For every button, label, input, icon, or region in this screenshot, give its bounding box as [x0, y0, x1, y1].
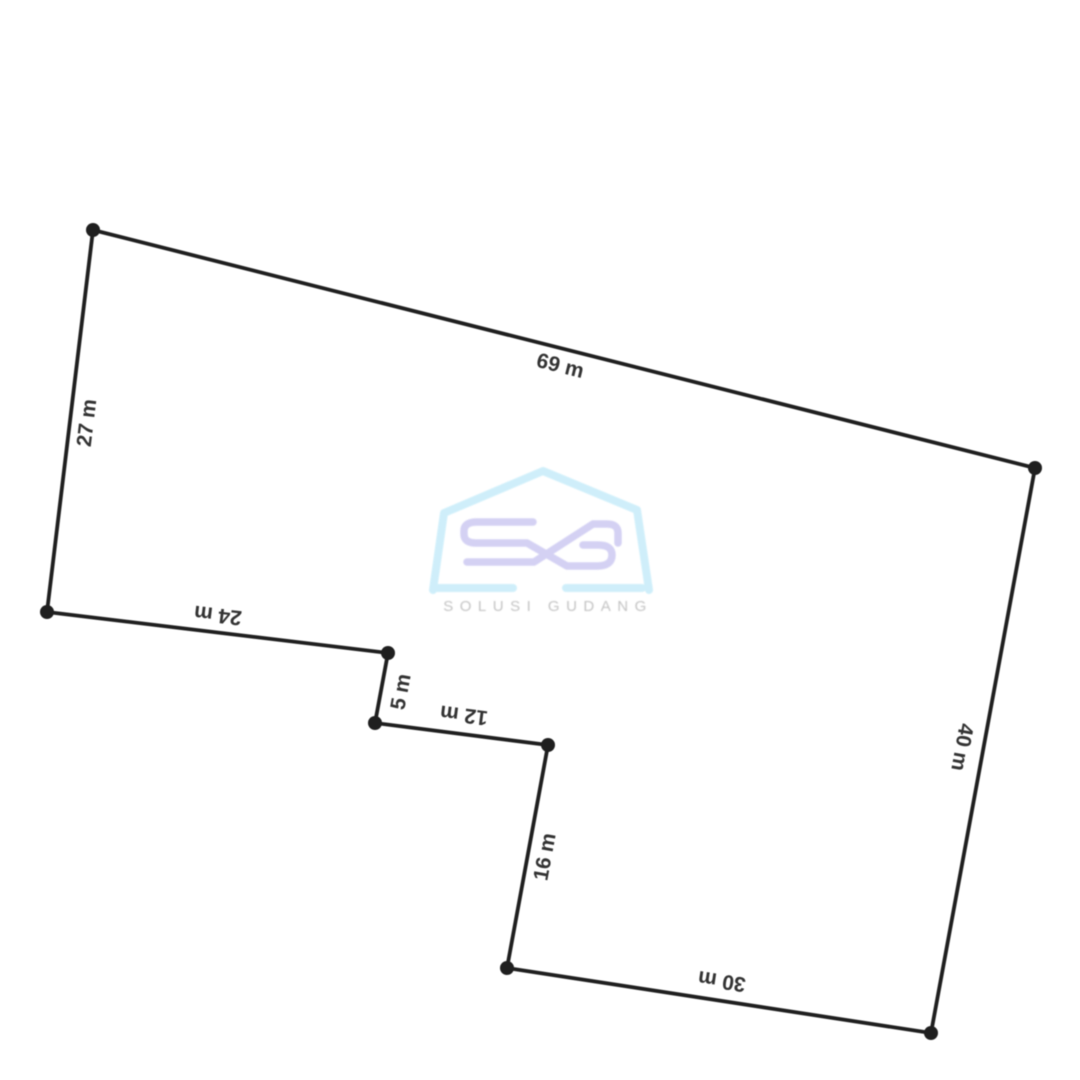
plot-outline-svg: 69 m40 m30 m16 m12 m5 m24 m27 m: [0, 0, 1080, 1080]
dimension-label: 40 m: [946, 722, 977, 773]
dimension-label: 5 m: [386, 672, 415, 712]
vertex-marker: [1028, 461, 1042, 475]
vertex-marker: [86, 223, 100, 237]
vertex-marker: [500, 961, 514, 975]
floor-plan-canvas: SG SOLUSI GUDANG 69 m40 m30 m16 m12 m5 m…: [0, 0, 1080, 1080]
dimension-label: 24 m: [193, 601, 243, 630]
dimension-label: 27 m: [73, 398, 102, 448]
dimension-label: 16 m: [529, 831, 560, 882]
dimension-label: 12 m: [439, 700, 489, 729]
vertex-marker: [368, 716, 382, 730]
dimension-label: 30 m: [696, 966, 747, 996]
vertex-marker: [40, 605, 54, 619]
vertex-marker: [381, 646, 395, 660]
vertices-group: [40, 223, 1042, 1040]
dimension-labels-group: 69 m40 m30 m16 m12 m5 m24 m27 m: [73, 349, 978, 996]
vertex-marker: [541, 738, 555, 752]
vertex-marker: [924, 1026, 938, 1040]
